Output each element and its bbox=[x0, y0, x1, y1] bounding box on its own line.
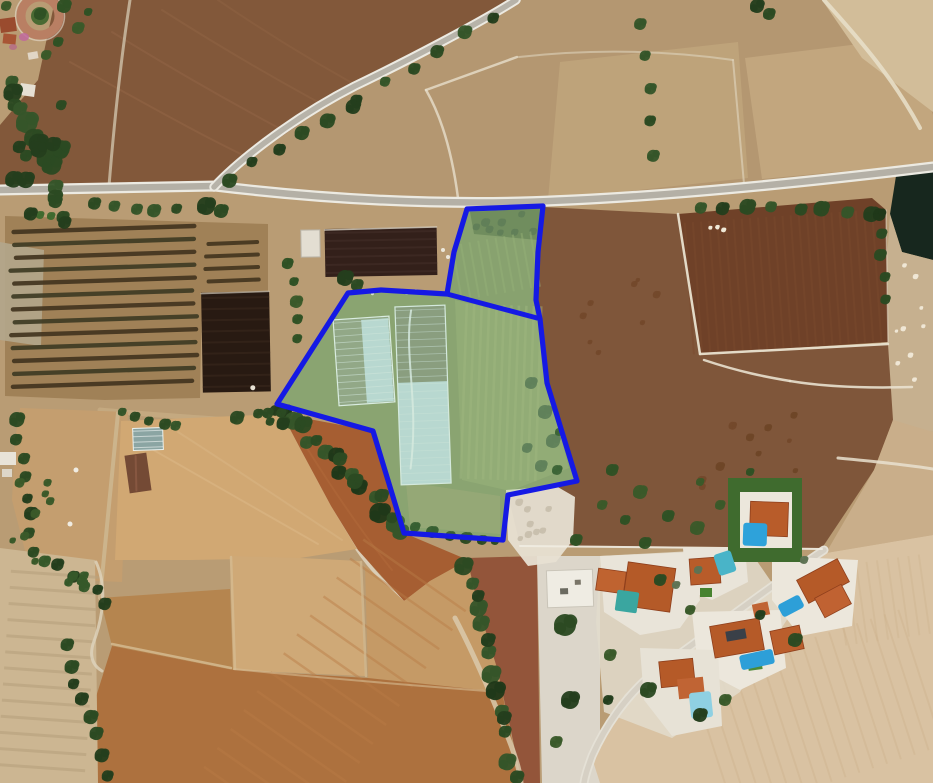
tree-canopy bbox=[13, 107, 20, 114]
tree-canopy bbox=[708, 227, 710, 229]
tree-canopy bbox=[318, 450, 326, 458]
tree-canopy bbox=[913, 276, 916, 279]
stripe bbox=[202, 341, 270, 342]
tree-canopy bbox=[650, 83, 657, 90]
tree-canopy bbox=[720, 462, 726, 468]
tree-canopy bbox=[222, 179, 230, 187]
tree-canopy bbox=[369, 510, 380, 521]
tree-canopy bbox=[296, 334, 302, 340]
tree-canopy bbox=[884, 272, 890, 278]
tree-canopy bbox=[46, 142, 54, 150]
tree-canopy bbox=[39, 560, 45, 566]
tree-canopy bbox=[16, 120, 28, 132]
tree-canopy bbox=[295, 424, 301, 430]
tree-canopy bbox=[28, 551, 34, 557]
tree-canopy bbox=[46, 500, 50, 504]
tree-canopy bbox=[13, 145, 20, 152]
tree-canopy bbox=[603, 699, 609, 705]
tree-canopy bbox=[454, 564, 464, 574]
tree-canopy bbox=[104, 598, 112, 606]
tree-canopy bbox=[536, 529, 540, 533]
tree-canopy bbox=[874, 253, 881, 260]
tree-canopy bbox=[81, 692, 89, 700]
tree-canopy bbox=[598, 350, 601, 353]
tree-canopy bbox=[27, 494, 33, 500]
tree-canopy bbox=[794, 633, 803, 642]
tree-canopy bbox=[51, 212, 56, 217]
tree-canopy bbox=[214, 209, 222, 217]
vine-row bbox=[206, 255, 258, 257]
tree-canopy bbox=[436, 45, 444, 53]
tree-canopy bbox=[716, 228, 718, 230]
tree-canopy bbox=[903, 326, 906, 329]
tree-canopy bbox=[18, 457, 24, 463]
tree-canopy bbox=[12, 84, 23, 95]
tree-canopy bbox=[300, 441, 307, 448]
tree-canopy bbox=[466, 582, 473, 589]
tree-canopy bbox=[293, 277, 299, 283]
tree-canopy bbox=[25, 471, 32, 478]
tree-canopy bbox=[257, 409, 263, 415]
tree-canopy bbox=[915, 274, 918, 277]
tree-canopy bbox=[64, 216, 72, 224]
tree-canopy bbox=[717, 227, 719, 229]
tree-canopy bbox=[97, 585, 103, 591]
tree-canopy bbox=[55, 195, 63, 203]
tree-canopy bbox=[42, 493, 46, 497]
tree-canopy bbox=[147, 209, 154, 216]
tree-canopy bbox=[130, 415, 136, 421]
tree-canopy bbox=[813, 207, 822, 216]
tree-canopy bbox=[667, 510, 674, 517]
tree-canopy bbox=[472, 578, 480, 586]
tree-canopy bbox=[72, 571, 78, 577]
tree-canopy bbox=[588, 342, 591, 345]
tree-canopy bbox=[896, 330, 898, 332]
tree-canopy bbox=[923, 324, 926, 327]
tree-canopy bbox=[15, 482, 20, 487]
bougainvillea bbox=[19, 33, 29, 41]
tree-canopy bbox=[266, 421, 271, 426]
tree-canopy bbox=[716, 465, 721, 470]
tree-canopy bbox=[12, 538, 16, 542]
tree-canopy bbox=[9, 418, 17, 426]
tree-canopy bbox=[18, 141, 26, 149]
tree-canopy bbox=[642, 320, 645, 323]
stripe bbox=[201, 308, 269, 309]
tree-canopy bbox=[510, 776, 518, 783]
tree-canopy bbox=[101, 749, 110, 758]
villa-roof bbox=[0, 17, 17, 33]
tree-canopy bbox=[486, 688, 496, 698]
tree-canopy bbox=[897, 361, 900, 364]
tree-canopy bbox=[597, 504, 603, 510]
tree-canopy bbox=[787, 440, 790, 443]
tree-canopy bbox=[555, 736, 562, 743]
tree-canopy bbox=[90, 710, 99, 719]
tree-canopy bbox=[300, 420, 306, 426]
tree-canopy bbox=[52, 137, 61, 146]
satellite-map[interactable] bbox=[0, 0, 933, 783]
tree-canopy bbox=[301, 126, 310, 135]
tree-canopy bbox=[354, 474, 364, 484]
tree-canopy bbox=[504, 726, 512, 734]
tree-canopy bbox=[550, 741, 557, 748]
tree-canopy bbox=[901, 328, 904, 331]
field-p2 bbox=[230, 556, 365, 676]
tree-canopy bbox=[56, 104, 62, 110]
tree-canopy bbox=[277, 422, 284, 429]
tree-canopy bbox=[23, 453, 30, 460]
tree-canopy bbox=[297, 314, 303, 320]
tree-canopy bbox=[524, 509, 528, 513]
tree-canopy bbox=[470, 606, 479, 615]
tree-canopy bbox=[134, 412, 140, 418]
tree-canopy bbox=[230, 416, 238, 424]
tree-canopy bbox=[54, 180, 63, 189]
tree-canopy bbox=[16, 412, 25, 421]
tree-canopy bbox=[700, 202, 707, 209]
tree-canopy bbox=[653, 294, 657, 298]
tree-canopy bbox=[51, 563, 58, 570]
villa-roof bbox=[596, 568, 627, 594]
tree-canopy bbox=[609, 649, 616, 656]
tree-canopy bbox=[759, 610, 765, 616]
net-house-roof bbox=[325, 227, 438, 277]
tree-canopy bbox=[57, 4, 65, 12]
stripe bbox=[202, 319, 270, 320]
tree-canopy bbox=[205, 197, 216, 208]
tree-canopy bbox=[750, 468, 755, 473]
tree-canopy bbox=[68, 683, 74, 689]
tree-canopy bbox=[880, 298, 885, 303]
tree-canopy bbox=[25, 172, 35, 182]
tree-canopy bbox=[49, 200, 56, 207]
swimming-pool bbox=[743, 523, 768, 547]
vine-row bbox=[208, 242, 257, 244]
tree-canopy bbox=[795, 208, 802, 215]
tree-canopy bbox=[331, 471, 339, 479]
lawn bbox=[700, 588, 712, 597]
tree-canopy bbox=[276, 412, 281, 417]
tree-canopy bbox=[793, 470, 796, 473]
tree-canopy bbox=[273, 148, 280, 155]
tree-canopy bbox=[487, 633, 496, 642]
tree-canopy bbox=[350, 99, 356, 105]
tree-canopy bbox=[355, 95, 362, 102]
tree-canopy bbox=[387, 516, 393, 522]
tree-canopy bbox=[634, 23, 641, 30]
tree-canopy bbox=[768, 424, 773, 429]
tree-canopy bbox=[919, 308, 921, 310]
tree-canopy bbox=[20, 535, 25, 540]
tree-canopy bbox=[724, 694, 731, 701]
tree-canopy bbox=[197, 204, 207, 214]
tree-canopy bbox=[672, 584, 676, 588]
tree-canopy bbox=[144, 420, 149, 425]
tree-canopy bbox=[15, 434, 22, 441]
tree-canopy bbox=[685, 609, 691, 615]
tree-canopy bbox=[746, 471, 750, 475]
tree-canopy bbox=[171, 207, 177, 213]
tree-canopy bbox=[176, 204, 182, 210]
tree-canopy bbox=[292, 318, 298, 324]
tree-canopy bbox=[34, 558, 38, 562]
tree-canopy bbox=[482, 672, 492, 682]
tree-canopy bbox=[756, 453, 759, 456]
tree-canopy bbox=[647, 682, 657, 692]
tree-canopy bbox=[118, 411, 123, 416]
tree-canopy bbox=[525, 534, 529, 538]
tree-canopy bbox=[61, 643, 68, 650]
tree-canopy bbox=[729, 425, 733, 429]
tree-canopy bbox=[333, 457, 340, 464]
tree-canopy bbox=[287, 258, 294, 265]
tree-canopy bbox=[497, 716, 505, 724]
tree-canopy bbox=[408, 67, 414, 73]
tree-canopy bbox=[20, 154, 26, 160]
tree-canopy bbox=[253, 412, 258, 417]
tree-canopy bbox=[477, 590, 484, 597]
tree-canopy bbox=[699, 708, 708, 717]
tree-canopy bbox=[83, 571, 89, 577]
tree-canopy bbox=[640, 54, 646, 60]
tree-canopy bbox=[768, 8, 775, 15]
tree bbox=[510, 770, 524, 783]
tree-canopy bbox=[696, 481, 700, 485]
tree-canopy bbox=[652, 150, 660, 158]
tree-canopy bbox=[33, 547, 40, 554]
tree-canopy bbox=[22, 497, 28, 503]
tree-canopy bbox=[462, 557, 473, 568]
tree-canopy bbox=[57, 37, 63, 43]
stripe bbox=[203, 375, 271, 376]
tree-canopy bbox=[279, 144, 286, 151]
tree-canopy bbox=[676, 581, 681, 586]
tree-canopy bbox=[587, 302, 590, 305]
tree-canopy bbox=[746, 199, 756, 209]
tree-canopy bbox=[39, 8, 46, 15]
tree-canopy bbox=[637, 278, 640, 281]
tree-canopy bbox=[499, 760, 508, 769]
tree-canopy bbox=[75, 697, 82, 704]
tree-canopy bbox=[639, 18, 646, 25]
tree-canopy bbox=[499, 730, 506, 737]
tree-canopy bbox=[516, 771, 524, 779]
building-roof bbox=[546, 569, 593, 608]
tree-canopy bbox=[57, 559, 65, 567]
white-shed bbox=[2, 469, 12, 477]
tree-canopy bbox=[895, 331, 897, 333]
tree-canopy bbox=[60, 100, 66, 106]
tree-canopy bbox=[153, 204, 161, 212]
tree-canopy bbox=[569, 691, 580, 702]
roof-vent bbox=[575, 580, 581, 585]
tree-canopy bbox=[533, 531, 537, 535]
tree-canopy bbox=[472, 595, 479, 602]
tree-canopy bbox=[564, 614, 578, 628]
tree-canopy bbox=[19, 102, 27, 110]
tree-canopy bbox=[604, 654, 611, 661]
tree-canopy bbox=[910, 353, 913, 356]
tree-canopy bbox=[34, 13, 41, 20]
tree-canopy bbox=[50, 497, 55, 502]
tree-canopy bbox=[878, 208, 886, 216]
tree-canopy bbox=[575, 534, 582, 541]
tree-canopy bbox=[804, 556, 809, 561]
tree-canopy bbox=[640, 688, 649, 697]
tree-canopy bbox=[895, 363, 898, 366]
tree-canopy bbox=[527, 506, 531, 510]
tree-canopy bbox=[347, 479, 356, 488]
swimming-pool bbox=[615, 590, 640, 614]
stripe bbox=[203, 386, 271, 387]
tree-canopy bbox=[695, 206, 701, 212]
tree-canopy bbox=[289, 280, 294, 285]
tree-canopy bbox=[722, 202, 730, 210]
tree-canopy bbox=[530, 521, 534, 525]
tree-canopy bbox=[73, 679, 80, 686]
tree-canopy bbox=[41, 54, 47, 60]
tree-canopy bbox=[45, 491, 49, 495]
tree-canopy bbox=[413, 63, 420, 70]
tree-canopy bbox=[295, 131, 303, 139]
tree-canopy bbox=[503, 711, 512, 720]
stripe bbox=[202, 330, 270, 331]
tree-canopy bbox=[64, 581, 69, 586]
tree-canopy bbox=[88, 202, 95, 209]
tree-canopy bbox=[765, 205, 771, 211]
tree-canopy bbox=[19, 478, 25, 484]
tree-canopy bbox=[764, 427, 768, 431]
tree-canopy bbox=[715, 504, 721, 510]
white-shed bbox=[301, 230, 320, 257]
vine-row bbox=[205, 267, 258, 269]
tree-canopy bbox=[693, 713, 701, 721]
tree-canopy bbox=[620, 519, 626, 525]
tree-canopy bbox=[876, 232, 882, 238]
tree-canopy bbox=[53, 41, 59, 47]
tree-canopy bbox=[723, 228, 726, 231]
tree-canopy bbox=[561, 698, 571, 708]
tree-canopy bbox=[750, 4, 758, 12]
tree-canopy bbox=[311, 439, 317, 445]
tree-canopy bbox=[528, 531, 532, 535]
tree-canopy bbox=[83, 579, 89, 585]
tree-canopy bbox=[699, 486, 702, 489]
tree-canopy bbox=[220, 204, 229, 213]
tree-canopy bbox=[739, 205, 748, 214]
tree-canopy bbox=[92, 588, 98, 594]
tree-canopy bbox=[95, 754, 103, 762]
tree-canopy bbox=[596, 352, 599, 355]
tree-canopy bbox=[879, 249, 887, 257]
tree-canopy bbox=[696, 521, 705, 530]
tree-canopy bbox=[24, 512, 31, 519]
tree-canopy bbox=[295, 296, 303, 304]
tree-canopy bbox=[430, 50, 437, 57]
tree-canopy bbox=[267, 408, 274, 415]
tree-canopy bbox=[904, 263, 907, 266]
tree-canopy bbox=[788, 638, 796, 646]
tree-canopy bbox=[31, 512, 36, 517]
tree-canopy bbox=[548, 506, 552, 510]
tree-canopy bbox=[346, 105, 354, 113]
tree-canopy bbox=[749, 434, 754, 439]
tree-canopy bbox=[473, 621, 482, 630]
tree-canopy bbox=[649, 116, 656, 123]
tree-canopy bbox=[698, 566, 703, 571]
tree-canopy bbox=[65, 665, 73, 673]
tree-canopy bbox=[24, 212, 31, 219]
tree-canopy bbox=[590, 300, 594, 304]
tree-canopy bbox=[9, 540, 12, 543]
tree-canopy bbox=[384, 77, 390, 83]
white-speck bbox=[446, 255, 450, 259]
tree-canopy bbox=[758, 451, 762, 455]
tree-canopy bbox=[647, 154, 654, 161]
tree-canopy bbox=[644, 537, 651, 544]
tree-canopy bbox=[639, 542, 646, 549]
tree-canopy bbox=[480, 616, 490, 626]
tree-canopy bbox=[644, 51, 651, 58]
tree-canopy bbox=[700, 478, 705, 483]
tree-canopy bbox=[351, 284, 358, 291]
tree-canopy bbox=[26, 112, 39, 125]
tree-canopy bbox=[282, 262, 288, 268]
tree-canopy bbox=[5, 1, 11, 7]
tree-canopy bbox=[381, 489, 389, 497]
tree-canopy bbox=[494, 681, 506, 693]
tree-canopy bbox=[11, 76, 19, 84]
bougainvillea bbox=[9, 44, 17, 50]
tree-canopy bbox=[269, 418, 274, 423]
tree-canopy bbox=[601, 500, 607, 506]
tree-canopy bbox=[492, 13, 499, 20]
tree-canopy bbox=[716, 207, 723, 214]
tree-canopy bbox=[316, 435, 323, 442]
net-house-1 bbox=[325, 227, 438, 277]
tree-canopy bbox=[645, 87, 651, 93]
tree-canopy bbox=[375, 494, 382, 501]
tree-canopy bbox=[611, 464, 618, 471]
tree-canopy bbox=[820, 201, 830, 211]
tree-canopy bbox=[24, 532, 29, 537]
tree-canopy bbox=[30, 208, 38, 216]
tree-canopy bbox=[45, 50, 51, 56]
tree-canopy bbox=[583, 313, 587, 317]
tree-canopy bbox=[490, 665, 502, 677]
roof-vent bbox=[560, 588, 568, 594]
tree-canopy bbox=[88, 8, 93, 13]
tree-canopy bbox=[114, 201, 121, 208]
tree-canopy bbox=[710, 226, 712, 228]
tree-canopy bbox=[44, 556, 51, 563]
tree-canopy bbox=[290, 300, 297, 307]
tree-canopy bbox=[527, 523, 531, 527]
tree-canopy bbox=[519, 499, 524, 504]
tree-canopy bbox=[789, 439, 792, 442]
tree-canopy bbox=[159, 423, 165, 429]
tree-canopy bbox=[902, 265, 904, 267]
tree-canopy bbox=[344, 270, 354, 280]
stripe bbox=[202, 353, 270, 354]
tree-canopy bbox=[793, 412, 797, 416]
tree-canopy bbox=[606, 469, 613, 476]
tree-canopy bbox=[95, 727, 103, 735]
tree-canopy bbox=[47, 215, 51, 219]
tree-canopy bbox=[392, 530, 401, 539]
